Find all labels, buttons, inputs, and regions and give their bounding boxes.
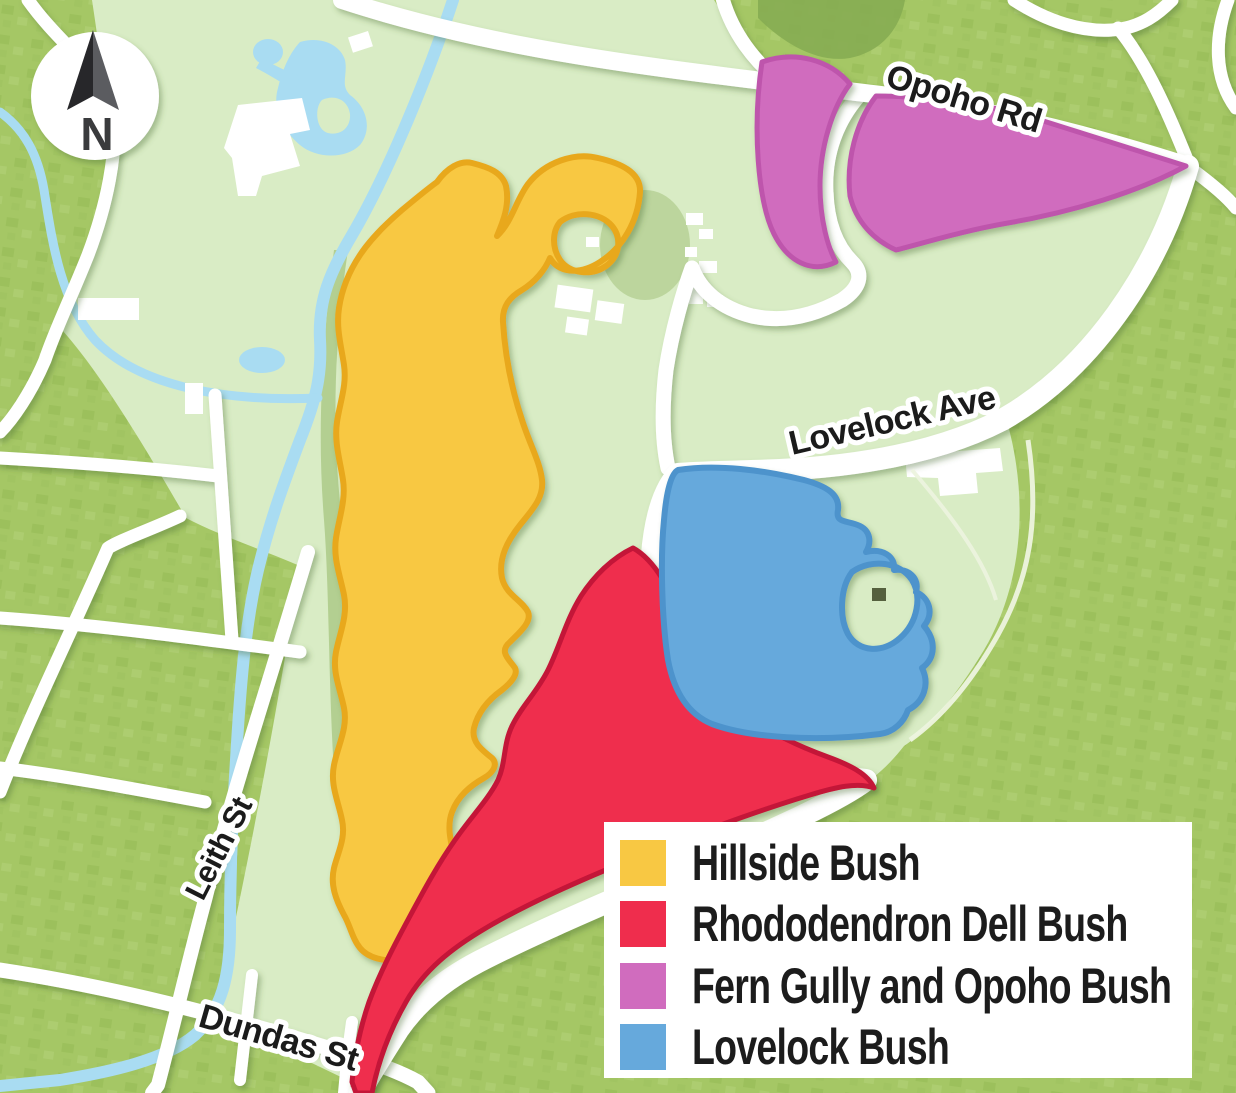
- map-page: Opoho Rd Lovelock Ave Leith St Dundas St…: [0, 0, 1236, 1093]
- legend-swatch-rhododendron-dell-bush: [620, 901, 666, 947]
- pond-inlet: [253, 39, 283, 65]
- legend-label-fern-gully-opoho-bush: Fern Gully and Opoho Bush: [692, 957, 1171, 1015]
- compass-n-label: N: [80, 108, 113, 160]
- legend-item-lovelock-bush: Lovelock Bush: [620, 1018, 1192, 1076]
- legend-item-hillside-bush: Hillside Bush: [620, 834, 1192, 892]
- legend-swatch-lovelock-bush: [620, 1024, 666, 1070]
- legend-swatch-fern-gully-opoho-bush: [620, 963, 666, 1009]
- legend-swatch-hillside-bush: [620, 840, 666, 886]
- legend-label-rhododendron-dell-bush: Rhododendron Dell Bush: [692, 895, 1128, 953]
- legend-label-lovelock-bush: Lovelock Bush: [692, 1018, 949, 1076]
- lower-pond: [239, 347, 285, 373]
- legend-item-fern-gully-opoho-bush: Fern Gully and Opoho Bush: [620, 957, 1192, 1015]
- legend-label-hillside-bush: Hillside Bush: [692, 834, 920, 892]
- legend-item-rhododendron-dell-bush: Rhododendron Dell Bush: [620, 895, 1192, 953]
- island-building: [872, 588, 886, 601]
- map-legend: Hillside Bush Rhododendron Dell Bush Fer…: [604, 822, 1192, 1078]
